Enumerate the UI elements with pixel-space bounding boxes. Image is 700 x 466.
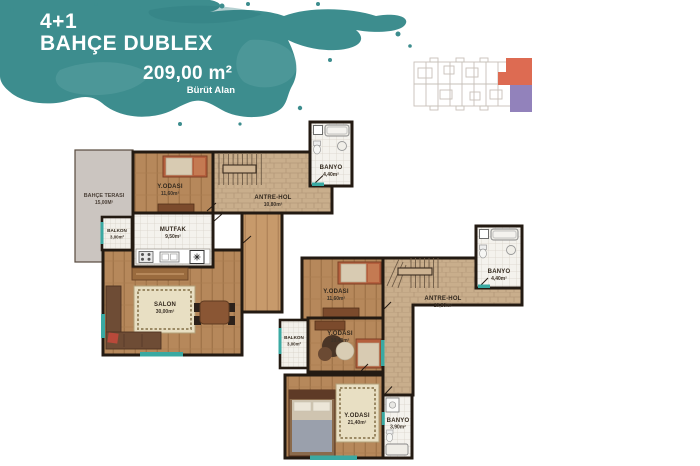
room-area: 3,00m² [287,342,301,347]
bath-window [314,126,323,135]
room-area: 3,00m² [110,235,124,240]
gross-area-label: Bürüt Alan [143,86,235,96]
sink [507,246,516,255]
page: 4+1 BAHÇE DUBLEX 209,00 m² Bürüt Alan [0,0,700,466]
plan-type-title: 4+1 [40,11,77,32]
key-plan-unit-lower [510,85,532,112]
room-kitchen: MUTFAK 9,50m² [133,213,222,267]
room-area: 10,40m² [331,338,350,344]
red-pillow [107,332,118,343]
window-accent [101,222,104,244]
stove [139,252,153,263]
stair-landing [398,268,432,275]
room-area: 21,40m² [348,420,367,426]
room-area: 4,40m² [323,172,339,178]
gross-area-value: 209,00 m² [143,64,232,83]
window-accent [310,456,357,461]
room-label: MUTFAK [160,227,187,233]
toilet [480,245,487,258]
room-label: BALKON [284,335,304,340]
room-area: 9,50m² [165,234,181,240]
room-area: 4,40m² [491,276,507,282]
window-accent [478,285,490,289]
room-bathroom: BANYO 4,40m² [310,122,352,186]
room-bathroom-small: BANYO 3,90m² [382,387,412,459]
bathtub [491,229,518,240]
window-accent [381,340,385,366]
shower [386,398,399,412]
room-label: BANYO [387,418,410,424]
room-label: BAHÇE TERASI [84,193,125,199]
bath-window [480,230,489,239]
building-key-plan [410,52,540,118]
window-accent [312,183,324,187]
room-area: 11,60m² [327,296,346,302]
dining-set [194,301,235,325]
room-label: Y.ODASI [157,184,183,190]
room-balcony: BALKON 3,00m² [101,217,133,250]
room-area: 11,60m² [161,191,180,197]
bed [163,156,207,177]
room-bedroom-master: Y.ODASI 21,40m² [285,375,383,460]
bed [289,390,335,456]
room-bathroom: BANYO 4,40m² [476,226,522,288]
floor-plan-upper: ANTRE-HOL 10,80m² Y.ODASI 11,60m² BALKON… [278,222,528,464]
room-label: Y.ODASI [344,413,370,419]
window-accent [101,314,105,338]
window-accent [382,412,385,425]
window-accent [140,352,183,357]
room-label: SALON [154,302,176,308]
room-area: 30,00m² [156,309,175,315]
room-label: ANTRE-HOL [254,195,291,201]
room-area: 15,00M² [95,200,114,206]
key-plan-outline [414,58,512,110]
room-label: BANYO [488,269,511,275]
bathtub [325,125,349,136]
sink [338,142,347,151]
room-label: ANTRE-HOL [424,296,461,302]
room-bedroom-middle: Y.ODASI 10,40m² [308,318,385,372]
room-label: Y.ODASI [327,331,353,337]
room-area: 10,80m² [434,303,453,309]
appliance [190,251,204,264]
key-plan-unit-upper [506,58,532,85]
room-area: 3,90m² [390,425,406,431]
room-label: BANYO [320,165,343,171]
sink [160,252,179,262]
room-label: BALKON [107,228,127,233]
bed [338,262,381,284]
room-bedroom: Y.ODASI 11,60m² [302,258,391,320]
dresser [315,321,345,330]
stair-landing [223,165,256,173]
room-area: 10,80m² [264,202,283,208]
room-bedroom: Y.ODASI 11,60m² [133,152,216,215]
toilet [314,141,321,154]
corridor [242,213,282,312]
plan-name-title: BAHÇE DUBLEX [40,33,213,54]
room-label: Y.ODASI [323,289,349,295]
bed [356,339,381,368]
room-balcony: BALKON 3,00m² [279,320,309,368]
bathtub [386,444,408,455]
toilet [386,430,393,442]
window-accent [279,328,282,354]
key-plan-unit-upper-wing [498,72,508,85]
